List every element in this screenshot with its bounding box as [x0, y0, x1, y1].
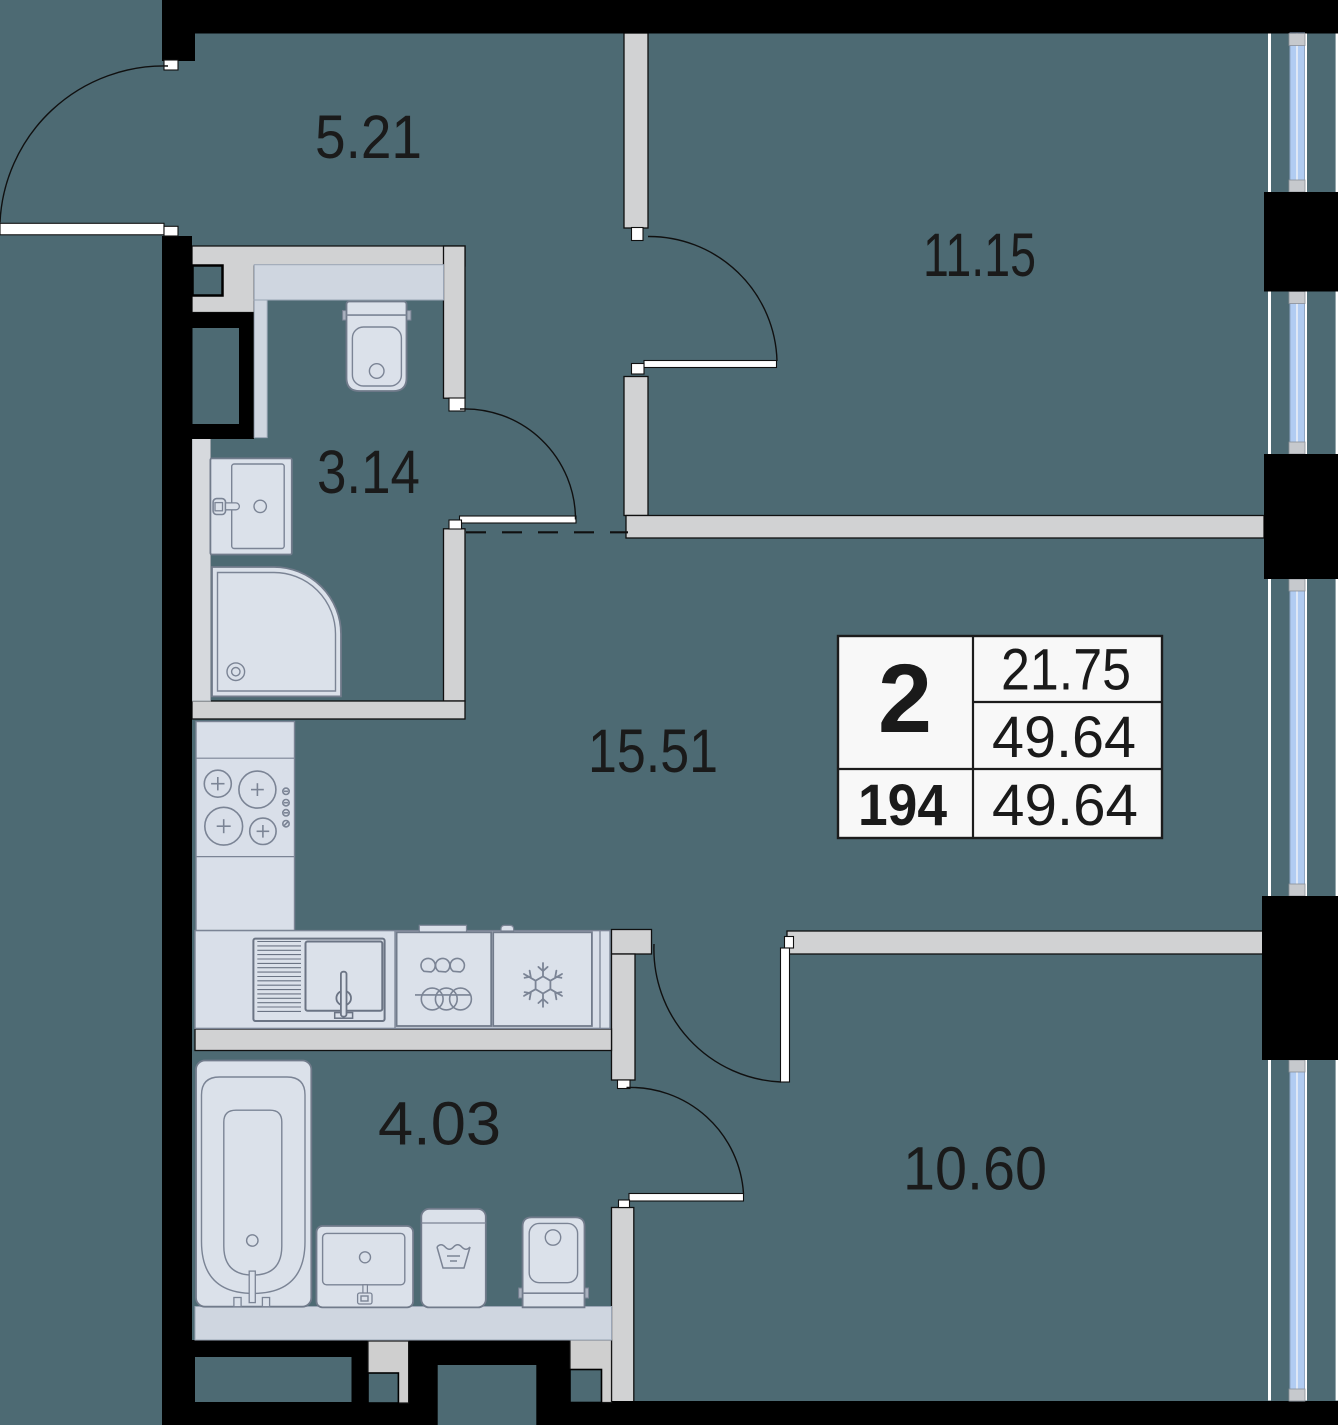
svg-text:3.14: 3.14	[317, 438, 420, 506]
svg-text:5.21: 5.21	[315, 103, 422, 171]
svg-text:10.60: 10.60	[903, 1135, 1047, 1203]
svg-text:11.15: 11.15	[923, 221, 1036, 289]
svg-text:21.75: 21.75	[1001, 638, 1131, 703]
svg-text:194: 194	[858, 773, 947, 838]
svg-text:15.51: 15.51	[588, 717, 718, 785]
svg-text:4.03: 4.03	[378, 1090, 501, 1158]
svg-text:2: 2	[878, 644, 932, 753]
svg-text:49.64: 49.64	[992, 773, 1138, 838]
svg-text:49.64: 49.64	[992, 705, 1136, 770]
